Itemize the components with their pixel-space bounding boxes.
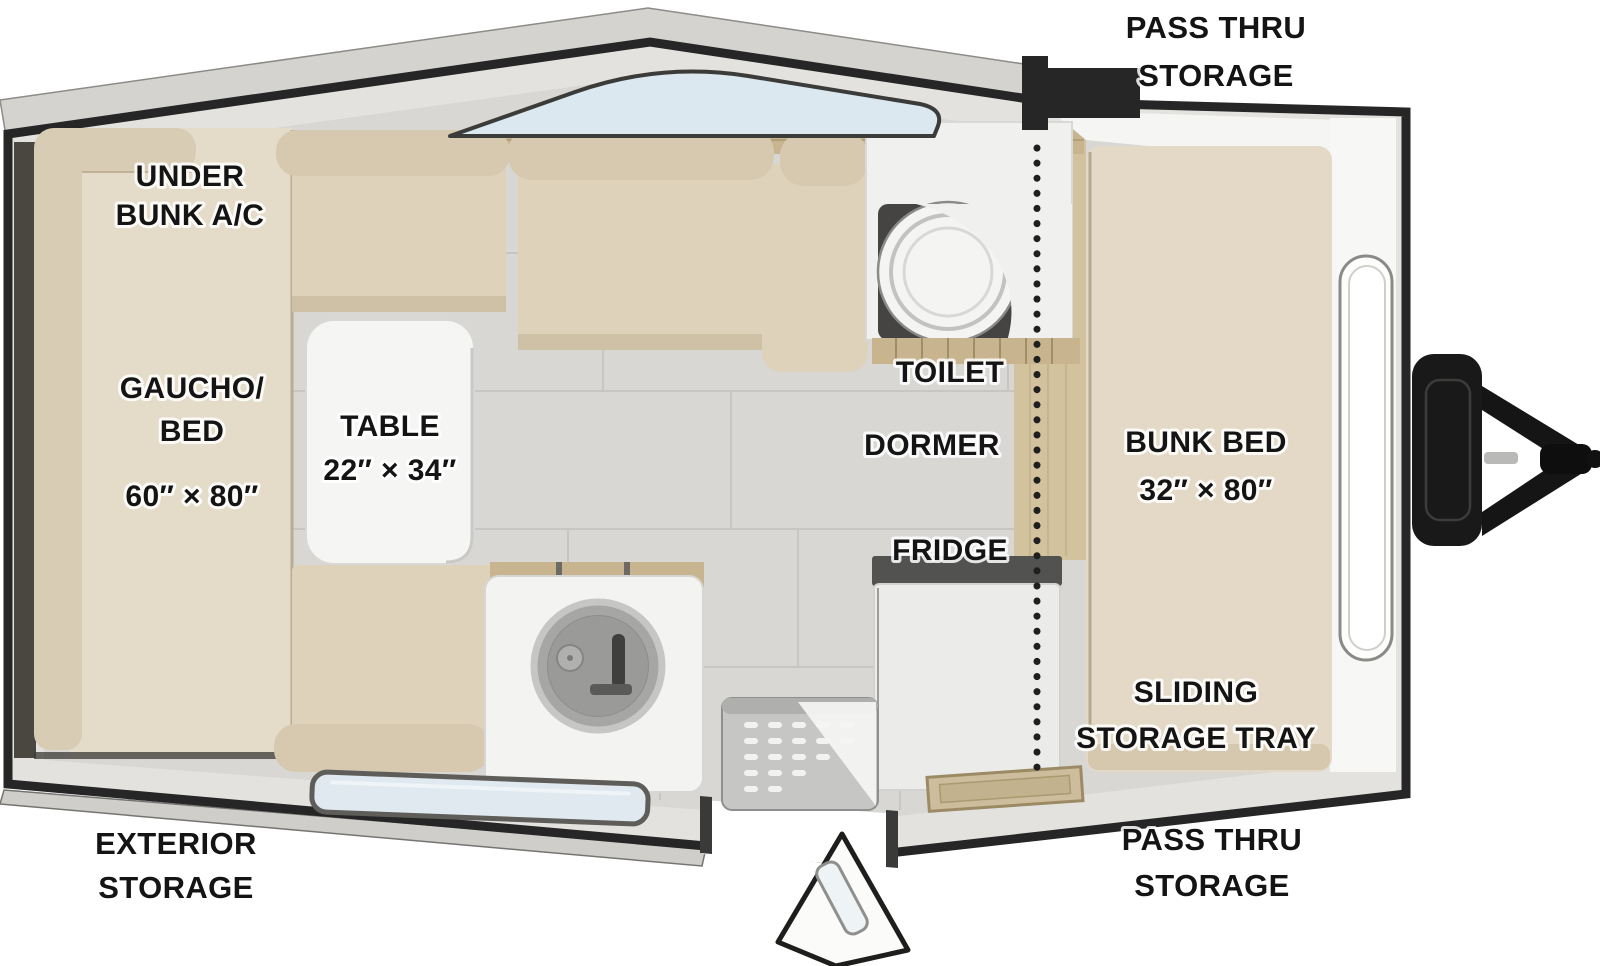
label-fridge: FRIDGE	[892, 534, 1008, 567]
gaucho-wall-shadow	[14, 142, 36, 758]
floorplan-page: PASS THRU STORAGE UNDER BUNK A/C GAUCHO/…	[0, 0, 1600, 966]
dinette-bench-bottom-cushion	[292, 565, 506, 730]
dinette-bench-bottom	[274, 565, 506, 772]
hitch-coupler	[1540, 444, 1592, 474]
sink-bowl	[534, 602, 662, 730]
door-jamb-left	[700, 796, 712, 854]
label-bunk-bed-2: 32″ × 80″	[1139, 474, 1272, 507]
sink-drain-center	[567, 655, 573, 661]
dinette-bench-top	[276, 130, 510, 312]
label-pass-thru-storage-bottom-2: STORAGE	[1134, 868, 1290, 903]
label-pass-thru-storage-bottom-1: PASS THRU	[1122, 822, 1302, 857]
label-pass-thru-storage-top-2: STORAGE	[1138, 58, 1294, 93]
label-under-bunk-ac-2: BUNK A/C	[116, 199, 265, 232]
dinette-bench-top-cushion	[292, 164, 506, 312]
sofa-bolster-right	[780, 132, 868, 186]
label-dormer: DORMER	[864, 429, 1000, 462]
label-bunk-bed-1: BUNK BED	[1125, 426, 1287, 459]
label-exterior-storage-2: STORAGE	[98, 870, 254, 905]
front-window	[1340, 256, 1392, 660]
label-sliding-storage-tray-1: SLIDING	[1134, 676, 1258, 709]
dinette-bench-bottom-bolster	[274, 724, 490, 772]
label-exterior-storage-1: EXTERIOR	[95, 826, 257, 861]
label-gaucho-bed-1: GAUCHO/	[120, 372, 265, 405]
label-table-2: 22″ × 34″	[323, 454, 456, 487]
tongue-cover	[1412, 354, 1482, 546]
entry-door	[700, 698, 908, 966]
label-pass-thru-storage-top-1: PASS THRU	[1126, 10, 1306, 45]
dinette-bench-top-front	[292, 296, 506, 312]
label-table-1: TABLE	[340, 410, 440, 443]
fridge	[872, 556, 1062, 790]
fridge-body	[874, 584, 1060, 790]
sink-cabinet	[485, 562, 704, 792]
hitch	[1412, 354, 1600, 546]
sofa-front-band	[518, 334, 762, 350]
label-gaucho-bed-3: 60″ × 80″	[125, 480, 258, 513]
entry-step	[722, 698, 878, 810]
label-under-bunk-ac-1: UNDER	[136, 160, 245, 193]
sofa-cushion-right	[762, 164, 868, 372]
label-toilet: TOILET	[896, 356, 1005, 389]
tongue-jack	[1484, 452, 1518, 464]
sofa	[508, 128, 868, 372]
door-jamb-right	[886, 810, 898, 868]
label-gaucho-bed-2: BED	[160, 415, 225, 448]
gaucho-platform-edge	[34, 752, 292, 759]
gaucho-backrest-cushion	[34, 134, 82, 750]
toilet-cabinet	[866, 122, 1080, 364]
label-sliding-storage-tray-2: STORAGE TRAY	[1076, 722, 1316, 755]
floorplan-canvas: PASS THRU STORAGE UNDER BUNK A/C GAUCHO/…	[0, 0, 1600, 966]
